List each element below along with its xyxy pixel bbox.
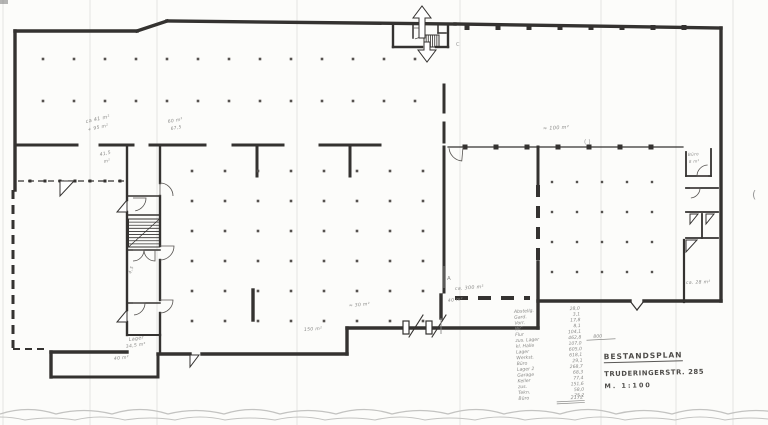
column-dot [352,58,355,61]
wall-pier [589,25,594,30]
wall-pier [651,25,656,30]
door-jamb [403,321,409,334]
column-dot [323,260,326,263]
schedule-room-name: Werkst. [516,354,534,361]
column-dot [191,230,194,233]
schedule-room-name: Keller [517,378,531,385]
wall-pier [119,180,122,183]
column-dot [224,320,227,323]
column-dot [576,271,578,273]
column-dot [422,230,425,233]
column-dot [257,260,260,263]
wall-pier [496,25,501,30]
column-dot [601,271,603,273]
schedule-room-name: Büro [517,361,528,368]
column-dot [191,170,194,173]
schedule-room-name: Lager [516,349,530,356]
column-dot [321,58,324,61]
column-dot [290,260,293,263]
column-dot [73,100,76,103]
column-dot [422,260,425,263]
column-dot [356,290,359,293]
wall-pier [104,180,107,183]
column-dot [290,230,293,233]
title-block-address: TRUDERINGERSTR. 285 [604,367,704,380]
column-dot [257,230,260,233]
column-dot [257,200,260,203]
column-dot [576,211,578,213]
column-dot [422,320,425,323]
title-block-scale: M. 1:100 [604,380,704,392]
column-dot [224,290,227,293]
schedule-room-area: 58,0 [574,387,585,394]
column-dot [42,100,45,103]
column-dot [224,200,227,203]
column-dot [191,200,194,203]
title-block: BESTANDSPLAN TRUDERINGERSTR. 285 M. 1:10… [603,340,704,395]
column-dot [601,241,603,243]
column-dot [197,100,200,103]
column-dot [191,320,194,323]
column-dot [259,100,262,103]
section-mark-label: A [447,276,451,282]
schedule-room-name: Lager 2 [517,366,535,373]
column-dot [356,320,359,323]
column-dot [651,211,653,213]
scanned-floorplan-page: (( )CAca 41 m²+ 95 m²60 m²67,541,5m²≈ 10… [0,0,768,425]
schedule-room-name: WC [515,326,524,332]
column-dot [601,181,603,183]
schedule-room-name: Büro [518,395,529,402]
wall-pier [463,145,468,150]
column-dot [389,260,392,263]
column-dot [224,170,227,173]
schedule-room-name: Vorr. [514,320,525,327]
column-dot [422,170,425,173]
schedule-total: 2172 [570,394,583,401]
schedule-room-area: 104,1 [568,329,582,336]
column-dot [389,290,392,293]
schedule-room-area: 68,3 [573,369,584,376]
column-dot [166,58,169,61]
column-dot [352,100,355,103]
schedule-room-name: Flur [515,332,525,339]
wall-pier [620,25,625,30]
wall-pier [525,145,530,150]
column-dot [191,260,194,263]
column-dot [290,320,293,323]
column-dot [290,290,293,293]
wall-pier [587,145,592,150]
column-dot [104,58,107,61]
schedule-room-area: 107,0 [568,340,582,347]
column-dot [601,211,603,213]
column-dot [259,58,262,61]
column-dot [257,320,260,323]
column-dot [224,230,227,233]
column-dot [323,170,326,173]
schedule-room-name: Tekn. [518,389,530,396]
column-dot [197,58,200,61]
column-dot [135,100,138,103]
schedule-room-area: 3,1 [573,311,581,317]
column-dot [257,170,260,173]
column-dot [356,200,359,203]
wall-pier [649,145,654,150]
column-dot [389,320,392,323]
handwritten-note: 8 m² [689,158,700,164]
column-dot [551,211,553,213]
wall-pier [558,25,563,30]
schedule-room-name: kl. Halle [516,343,535,350]
column-dot [356,170,359,173]
column-dot [290,100,293,103]
column-dot [414,58,417,61]
column-dot [104,100,107,103]
column-dot [422,290,425,293]
column-dot [323,200,326,203]
wall-pier [556,145,561,150]
column-dot [356,230,359,233]
column-dot [257,290,260,293]
column-dot [576,181,578,183]
schedule-room-area: 8,1 [573,323,581,329]
schedule-room-area: 17,8 [570,317,581,324]
column-dot [228,58,231,61]
column-dot [626,271,628,273]
schedule-room-area: 29,1 [572,358,583,365]
scan-glyph: ( [752,188,756,201]
door-jamb [426,321,432,334]
column-dot [356,260,359,263]
column-dot [323,230,326,233]
handwritten-note: ca. 28 m² [686,279,711,286]
column-dot [389,230,392,233]
schedule-room-area: 618,1 [569,352,583,359]
wall-pier [89,180,92,183]
column-dot [551,241,553,243]
scan-speck [0,0,8,4]
schedule-room-area: 268,7 [570,363,584,370]
column-dot [42,58,45,61]
column-dot [135,58,138,61]
wall-pier [618,145,623,150]
column-dot [321,100,324,103]
column-dot [626,181,628,183]
column-dot [389,170,392,173]
schedule-room-area: 28,0 [569,306,580,313]
wall-pier [494,145,499,150]
column-dot [383,58,386,61]
column-dot [191,290,194,293]
column-dot [626,241,628,243]
column-dot [551,181,553,183]
column-dot [626,211,628,213]
column-dot [290,58,293,61]
column-dot [414,100,417,103]
column-dot [224,260,227,263]
column-dot [651,181,653,183]
column-dot [389,200,392,203]
wall-pier [465,25,470,30]
wall-pier [682,25,687,30]
column-dot [323,320,326,323]
wall-pier [29,180,32,183]
column-dot [166,100,169,103]
schedule-room-name: Gard. [514,314,527,321]
scan-glyph: C [456,42,460,48]
column-dot [228,100,231,103]
schedule-room-name: Garage [517,372,534,379]
schedule-room-area: 462,8 [568,335,582,342]
schedule-room-name: zus. [517,385,527,391]
wall-pier [527,25,532,30]
schedule-room-area: 605,0 [569,346,583,353]
column-dot [422,200,425,203]
wall-pier [44,180,47,183]
column-dot [651,241,653,243]
schedule-room-name: Abstellg. [513,308,534,315]
schedule-side-note: 800 [593,333,602,339]
column-dot [323,290,326,293]
column-dot [290,170,293,173]
title-block-plan-name: BESTANDSPLAN [604,349,683,363]
column-dot [383,100,386,103]
schedule-room-area: 151,6 [571,381,585,388]
handwritten-note: Büro [688,151,699,157]
column-dot [651,271,653,273]
column-dot [290,200,293,203]
column-dot [576,241,578,243]
schedule-room-area: 77,4 [573,375,584,382]
column-dot [73,58,76,61]
column-dot [551,271,553,273]
